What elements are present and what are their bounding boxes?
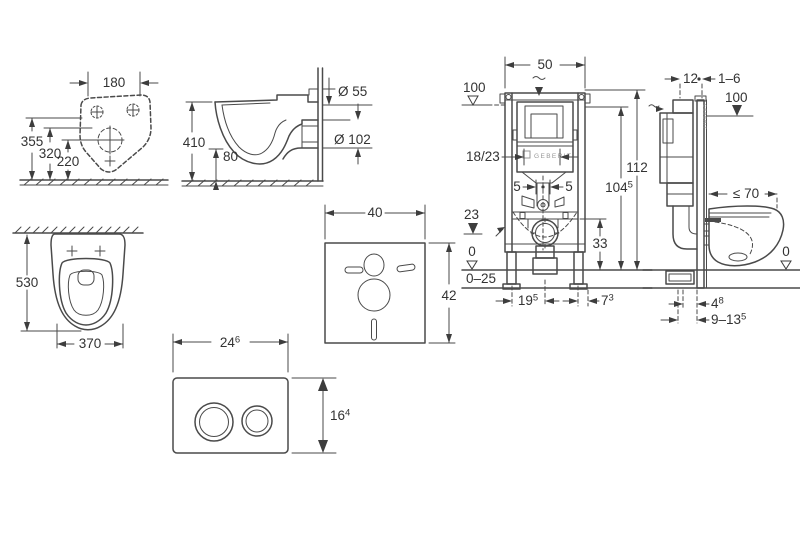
dim-5l-label: 5 [513,179,521,194]
dim-16-label: 1–6 [718,71,741,86]
rear-outline [80,95,151,172]
dim-410-label: 410 [183,135,206,150]
dim-floor-range-label: 0–25 [466,271,496,286]
dim-23-label: 23 [464,207,479,222]
dim-1045-label: 1045 [605,180,633,196]
dim-80: 80 [209,149,238,190]
level-0: 0 [467,244,477,269]
dim-220-label: 220 [57,154,80,169]
plate-outline [173,378,288,453]
dim-d55-label: Ø 55 [338,84,367,99]
dim-23: 23 [464,207,505,236]
cistern-profile [649,100,697,284]
dim-42: 42 [429,243,457,343]
dim-40: 40 [325,205,425,239]
dim-195-label: 195 [518,293,538,309]
dim-1823-label: 18/23 [466,149,500,164]
level-0-label: 0 [468,244,476,259]
dim-40-label: 40 [367,205,382,220]
dim-164: 164 [292,378,350,453]
toilet-side-view: 410 80 Ø 55 Ø 102 [182,56,382,201]
bowl-outline [51,234,125,330]
dim-48-label: 48 [711,296,724,312]
dim-42-label: 42 [441,288,456,303]
seat-hinge [705,218,721,222]
toilet-side-profile [704,206,784,266]
dim-164-label: 164 [330,408,350,424]
dim-530-label: 530 [16,275,39,290]
dim-180: 180 [70,72,158,96]
dim-d102: Ø 102 [323,104,372,164]
dim-410: 410 [183,102,212,181]
dim-33-label: 33 [592,236,607,251]
frame-structure [500,77,590,253]
wall-section [318,68,323,181]
dim-246: 246 [173,334,288,372]
flush-plate-view: 246 164 [156,328,356,463]
dim-9135: 9–135 [661,312,746,328]
rail: GEBERIT [695,96,708,288]
dim-50: 50 [505,57,585,88]
dim-70-label: ≤ 70 [733,186,759,201]
level-0-side-label: 0 [782,244,790,259]
dim-73-label: 73 [601,293,614,309]
dim-370-label: 370 [79,336,102,351]
dim-d102-label: Ø 102 [334,132,371,147]
dim-12-label: 12 [683,71,698,86]
level-100-label: 100 [463,80,486,95]
level-100-side: 100 [707,90,753,116]
brand-vertical-label: GEBERIT [703,104,708,130]
dim-246-label: 246 [220,335,240,351]
dim-5r-label: 5 [565,179,573,194]
level-100-side-label: 100 [725,90,748,105]
toilet-rear-view: 180 355 320 220 [0,58,185,198]
dim-370: 370 [57,324,123,351]
level-100: 100 [462,80,505,105]
technical-drawing-sheet: 180 355 320 220 [0,0,800,552]
dim-80-label: 80 [223,149,238,164]
dim-70: ≤ 70 [709,186,777,208]
frame-side-view: GEBERIT [643,40,800,332]
rear-floor [20,179,168,185]
side-floor [182,180,323,186]
dim-530: 530 [16,235,81,331]
frame-front-view: GEBERIT 50 100 [460,40,655,318]
dim-9135-label: 9–135 [711,312,746,328]
dim-50-label: 50 [537,57,552,72]
toilet-top-view: 530 370 [5,220,180,360]
wall-line [13,227,143,233]
dim-d55: Ø 55 [323,78,372,105]
dim-1823: 18/23 [466,149,578,165]
dim-180-label: 180 [103,75,126,90]
level-0-side: 0 [781,244,791,269]
